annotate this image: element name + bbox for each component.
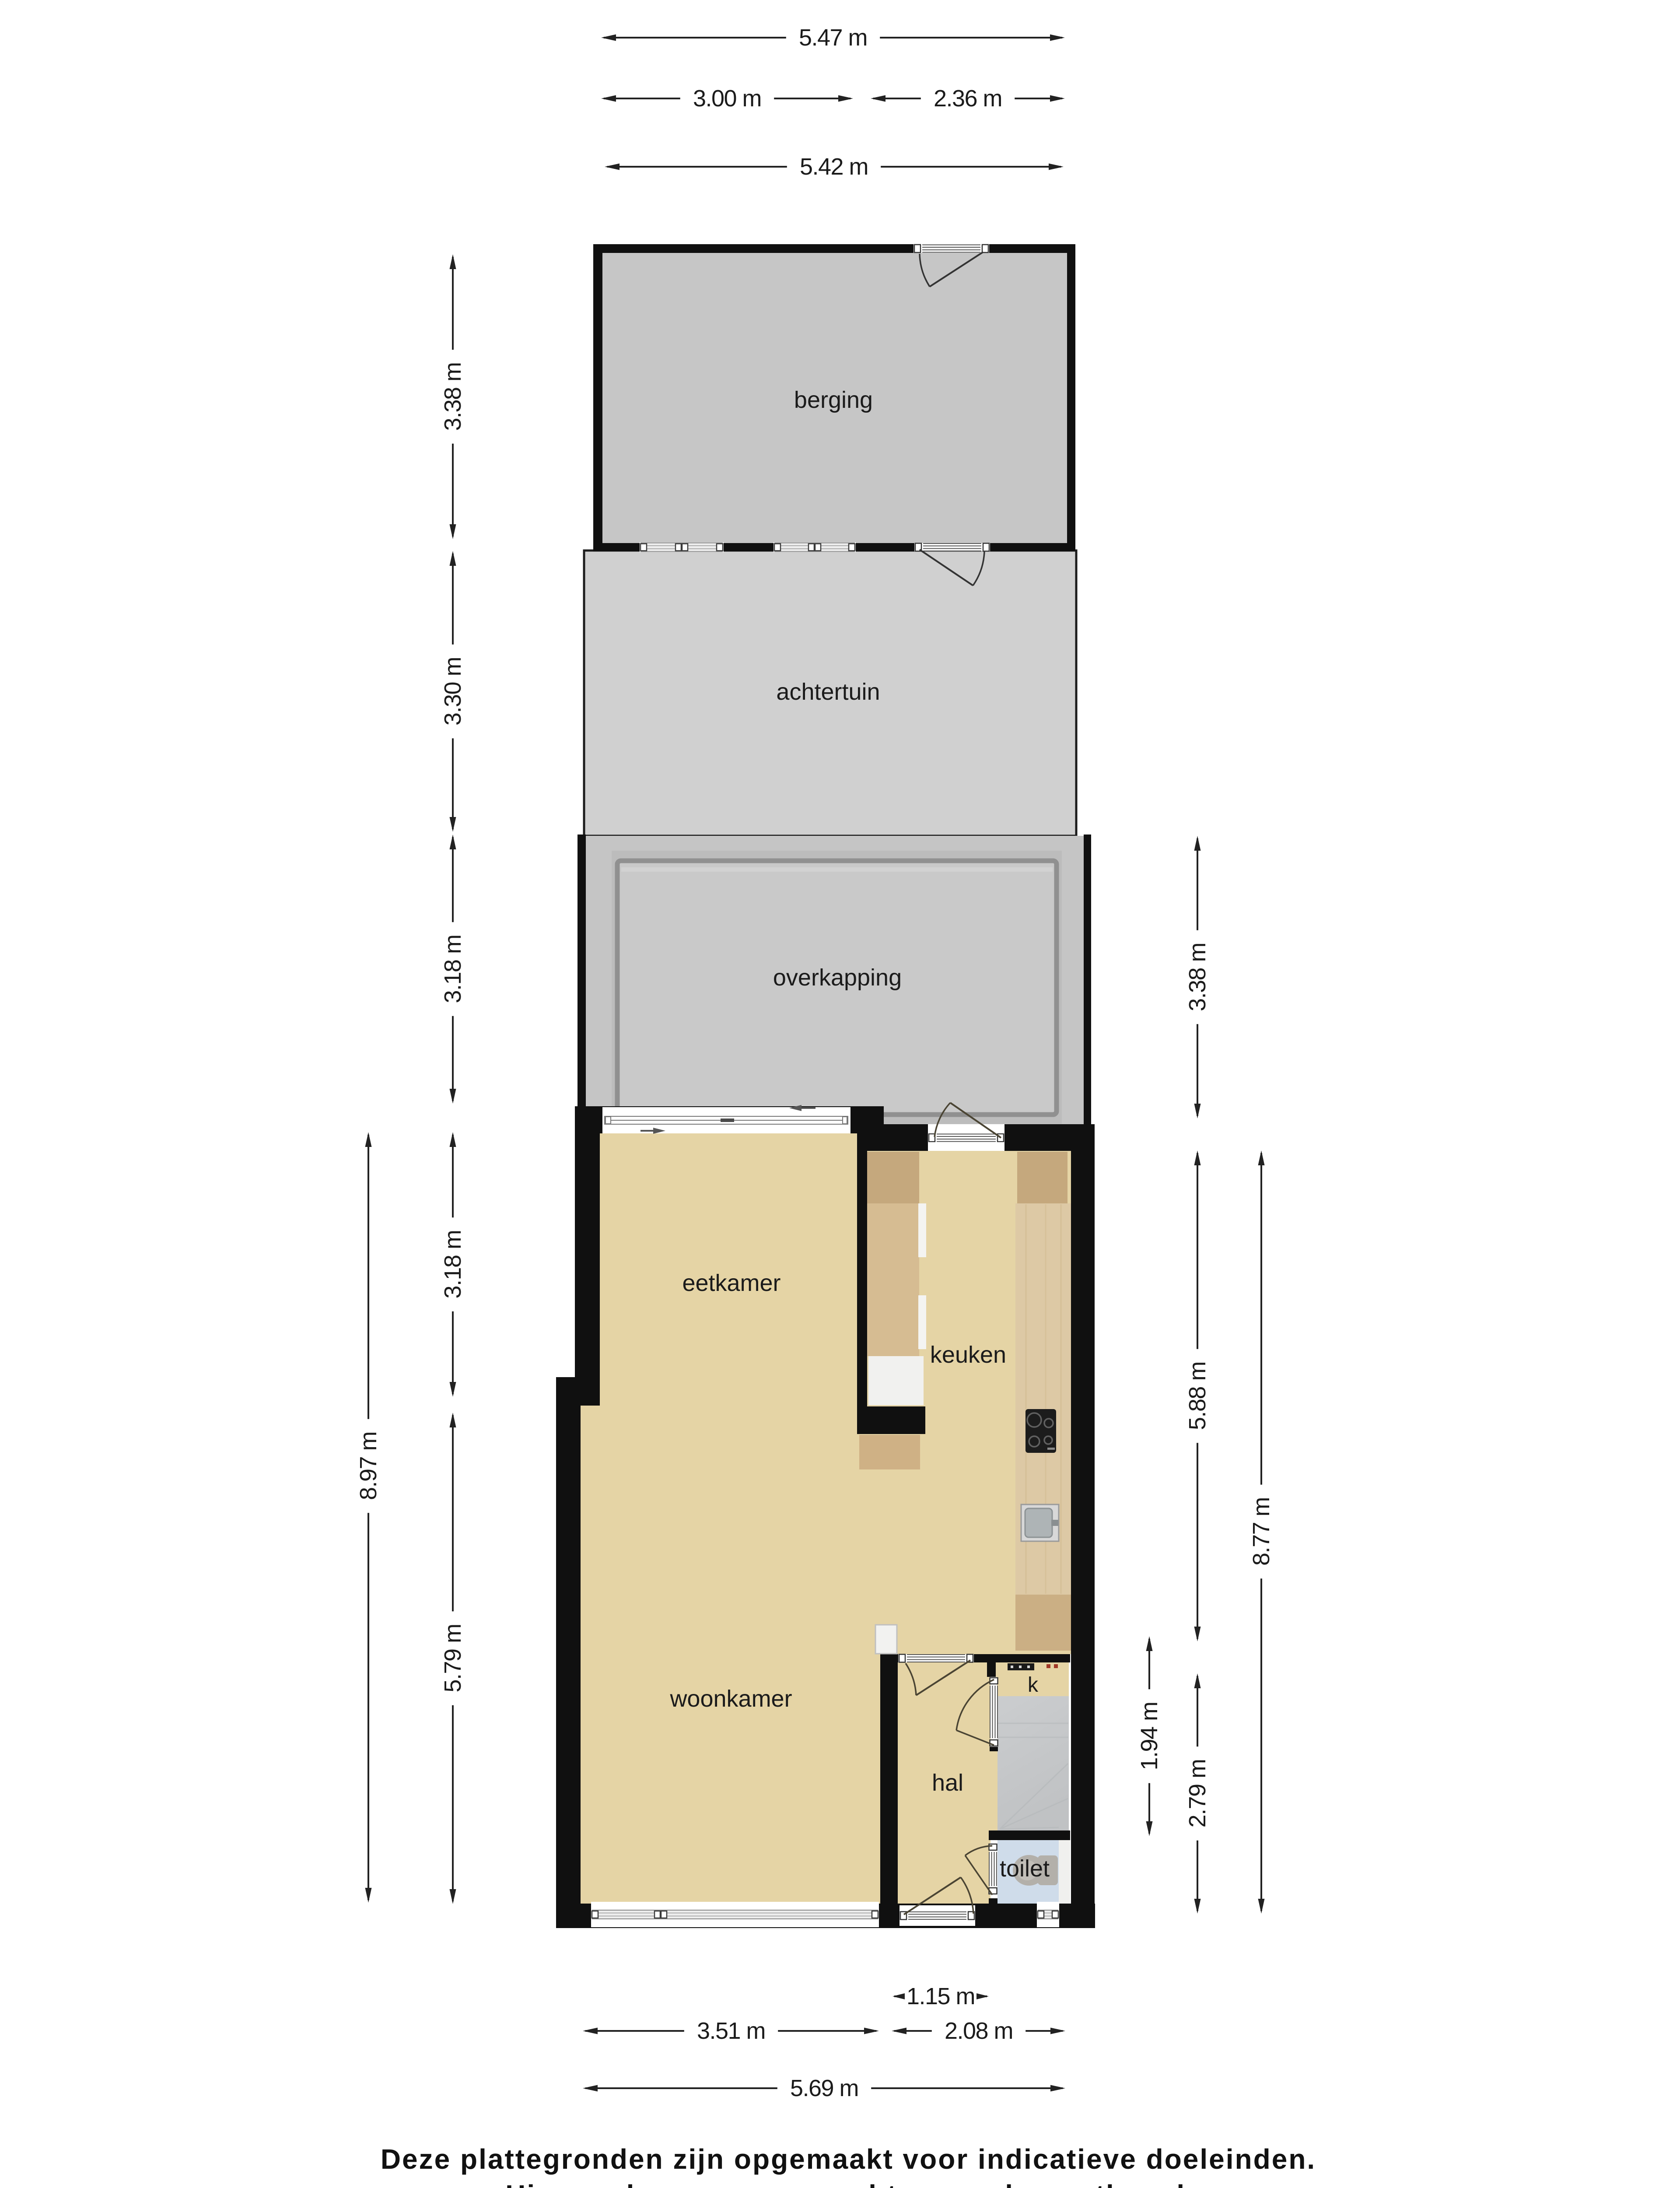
svg-text:5.69 m: 5.69 m	[790, 2075, 858, 2101]
svg-text:3.51 m: 3.51 m	[697, 2018, 765, 2044]
svg-text:3.00 m: 3.00 m	[693, 85, 761, 112]
svg-text:3.30 m: 3.30 m	[440, 657, 466, 726]
svg-text:2.36 m: 2.36 m	[934, 85, 1002, 112]
svg-text:Deze plattegronden zijn opgema: Deze plattegronden zijn opgemaakt voor i…	[381, 2143, 1316, 2175]
svg-text:1.94 m: 1.94 m	[1136, 1702, 1162, 1770]
svg-text:2.08 m: 2.08 m	[945, 2018, 1013, 2044]
svg-text:3.38 m: 3.38 m	[440, 362, 466, 431]
svg-text:hal: hal	[932, 1770, 963, 1796]
svg-text:2.79 m: 2.79 m	[1184, 1759, 1211, 1827]
svg-text:1.15 m: 1.15 m	[906, 1983, 975, 2009]
svg-text:keuken: keuken	[930, 1342, 1006, 1368]
svg-text:8.77 m: 8.77 m	[1248, 1497, 1274, 1566]
svg-text:3.38 m: 3.38 m	[1184, 943, 1211, 1011]
svg-text:Hieraan kunnen geen rechten wo: Hieraan kunnen geen rechten worden ontle…	[505, 2179, 1195, 2188]
svg-text:k: k	[1028, 1673, 1039, 1697]
svg-text:3.18 m: 3.18 m	[440, 935, 466, 1003]
svg-text:woonkamer: woonkamer	[669, 1686, 792, 1712]
svg-text:overkapping: overkapping	[773, 964, 902, 991]
svg-text:toilet: toilet	[1000, 1855, 1050, 1882]
svg-text:5.88 m: 5.88 m	[1184, 1362, 1211, 1430]
svg-text:achtertuin: achtertuin	[776, 679, 880, 705]
svg-text:3.18 m: 3.18 m	[440, 1230, 466, 1298]
svg-text:5.47 m: 5.47 m	[799, 25, 867, 51]
svg-text:5.42 m: 5.42 m	[800, 154, 868, 180]
svg-text:berging: berging	[794, 387, 873, 413]
svg-text:eetkamer: eetkamer	[682, 1270, 780, 1296]
svg-text:5.79 m: 5.79 m	[440, 1624, 466, 1692]
svg-text:8.97 m: 8.97 m	[355, 1432, 381, 1500]
